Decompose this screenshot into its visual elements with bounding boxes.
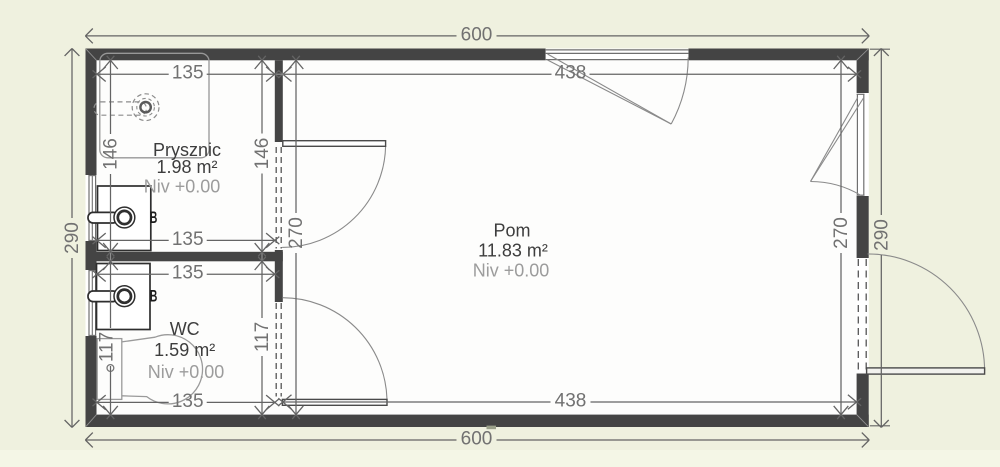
svg-text:135: 135	[172, 391, 204, 412]
svg-text:B: B	[150, 286, 158, 305]
svg-text:1.98 m²: 1.98 m²	[156, 157, 217, 177]
svg-text:290: 290	[62, 222, 83, 254]
svg-text:600: 600	[461, 428, 493, 449]
svg-text:117: 117	[97, 332, 118, 362]
svg-text:Pom: Pom	[493, 220, 530, 240]
svg-text:11.83 m²: 11.83 m²	[478, 240, 548, 260]
svg-text:146: 146	[252, 138, 273, 170]
svg-text:270: 270	[286, 217, 307, 249]
svg-text:117: 117	[252, 322, 273, 352]
svg-text:438: 438	[555, 63, 587, 84]
svg-text:1.59 m²: 1.59 m²	[154, 340, 215, 360]
svg-text:135: 135	[172, 263, 204, 284]
svg-text:Niv +0.00: Niv +0.00	[144, 177, 221, 197]
svg-text:Niv +0.00: Niv +0.00	[148, 362, 225, 382]
svg-text:270: 270	[831, 217, 852, 249]
svg-text:135: 135	[172, 63, 204, 84]
svg-text:Niv +0.00: Niv +0.00	[473, 261, 550, 281]
svg-text:146: 146	[101, 138, 122, 170]
svg-text:290: 290	[871, 219, 892, 251]
svg-text:WC: WC	[170, 319, 200, 339]
svg-text:135: 135	[172, 229, 204, 250]
svg-text:B: B	[150, 207, 158, 226]
svg-text:600: 600	[461, 24, 493, 45]
svg-text:438: 438	[555, 390, 587, 411]
